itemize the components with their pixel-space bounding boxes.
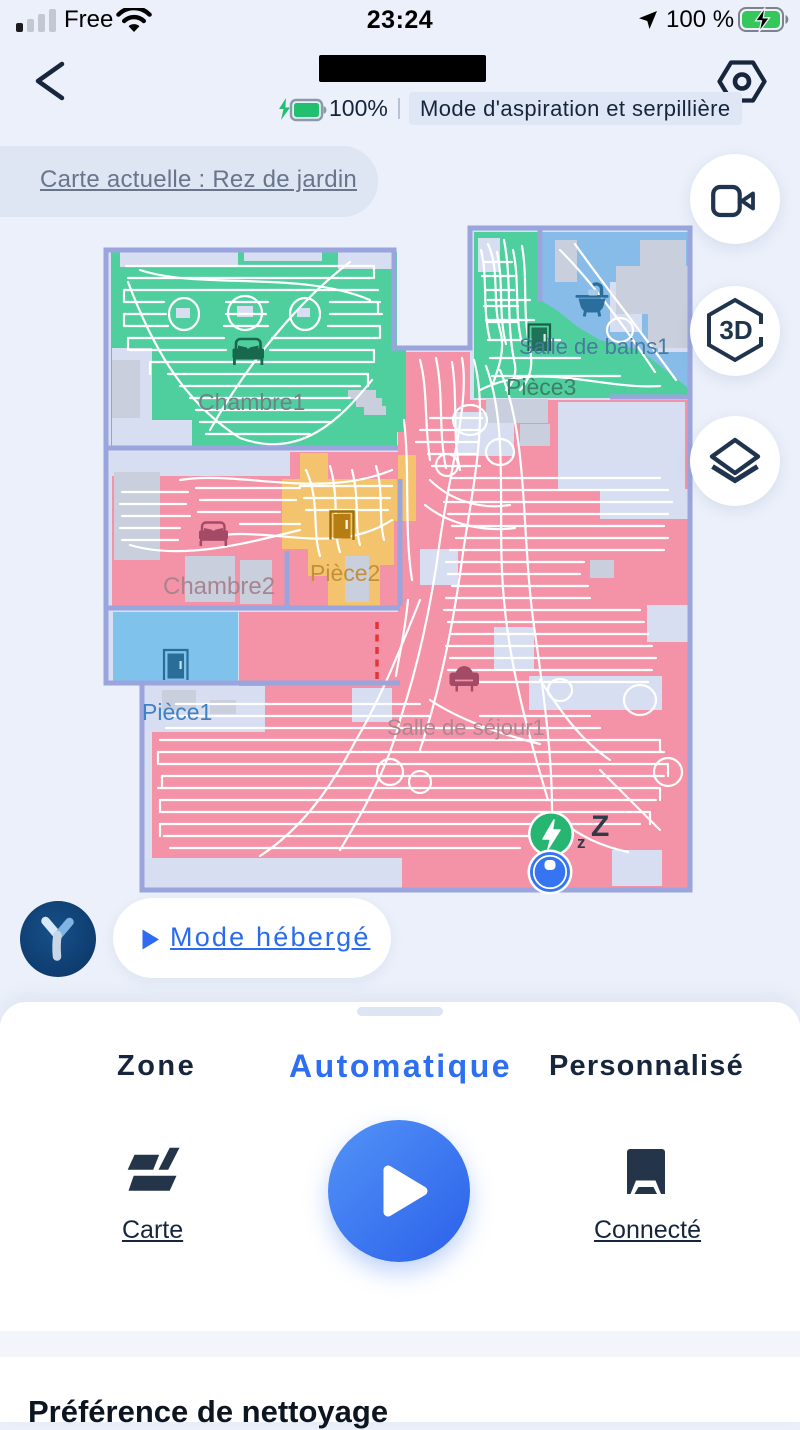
- svg-text:Z: Z: [591, 810, 609, 843]
- svg-text:Pièce2: Pièce2: [310, 560, 380, 586]
- svg-text:Salle de bains1: Salle de bains1: [519, 334, 669, 359]
- svg-text:Salle de séjour1: Salle de séjour1: [387, 715, 545, 740]
- svg-text:Chambre1: Chambre1: [198, 389, 305, 415]
- svg-text:Pièce1: Pièce1: [142, 699, 212, 725]
- svg-text:Pièce3: Pièce3: [506, 374, 576, 400]
- svg-text:3D: 3D: [719, 315, 752, 345]
- svg-text:z: z: [577, 833, 586, 852]
- svg-text:Chambre2: Chambre2: [163, 573, 275, 600]
